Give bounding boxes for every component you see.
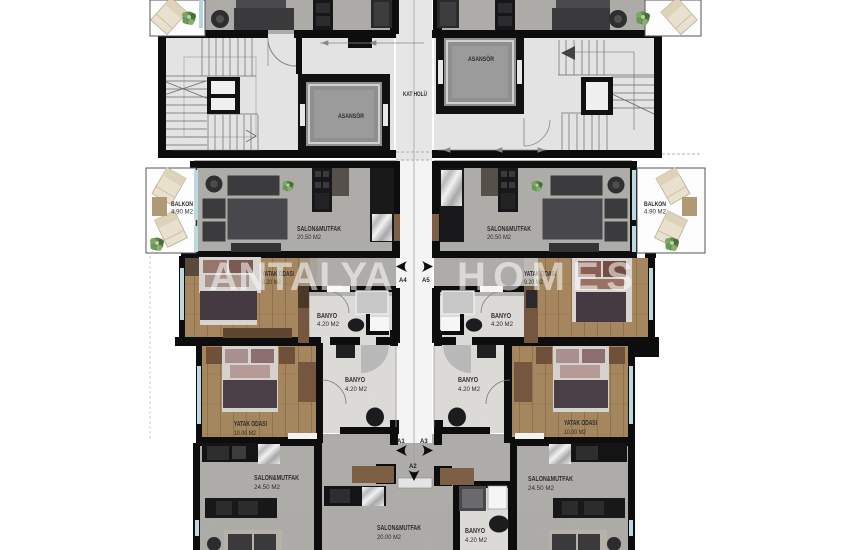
svg-text:BANYO: BANYO — [317, 313, 337, 320]
svg-text:BALKON: BALKON — [644, 201, 666, 208]
svg-text:BANYO: BANYO — [345, 377, 365, 384]
svg-text:A4: A4 — [399, 278, 407, 284]
svg-text:A2: A2 — [409, 464, 417, 470]
svg-text:10.00 M2: 10.00 M2 — [234, 430, 256, 437]
svg-text:SALON&MUTFAK: SALON&MUTFAK — [254, 475, 299, 482]
svg-text:A1: A1 — [397, 439, 405, 445]
svg-text:SALON&MUTFAK: SALON&MUTFAK — [297, 226, 341, 233]
svg-text:4.20 M2: 4.20 M2 — [465, 537, 487, 544]
svg-text:A5: A5 — [422, 278, 430, 284]
svg-text:4.90 M2: 4.90 M2 — [644, 210, 667, 216]
svg-text:4.90 M2: 4.90 M2 — [171, 210, 194, 216]
svg-text:10.00 M2: 10.00 M2 — [564, 429, 586, 436]
svg-text:4.20 M2: 4.20 M2 — [345, 386, 367, 393]
svg-text:24.50 M2: 24.50 M2 — [528, 485, 554, 492]
svg-text:20.50 M2: 20.50 M2 — [297, 234, 321, 241]
svg-text:24.50 M2: 24.50 M2 — [254, 484, 280, 491]
svg-text:BALKON: BALKON — [171, 201, 193, 208]
svg-text:20.50 M2: 20.50 M2 — [487, 234, 511, 241]
svg-text:4.20 M2: 4.20 M2 — [458, 386, 480, 393]
svg-text:SALON&MUTFAK: SALON&MUTFAK — [377, 525, 421, 532]
svg-text:20.00 M2: 20.00 M2 — [377, 534, 401, 541]
svg-text:YATAK ODASI: YATAK ODASI — [234, 421, 267, 428]
svg-text:ANTALYA: ANTALYA — [209, 255, 393, 299]
svg-text:HOMES: HOMES — [457, 255, 640, 299]
svg-text:BANYO: BANYO — [458, 377, 478, 384]
svg-text:BANYO: BANYO — [491, 313, 511, 320]
svg-text:KAT HOLÜ: KAT HOLÜ — [403, 91, 427, 98]
svg-text:ASANSÖR: ASANSÖR — [338, 113, 365, 120]
svg-text:4.20 M2: 4.20 M2 — [317, 321, 339, 328]
svg-text:4.20 M2: 4.20 M2 — [491, 321, 513, 328]
svg-text:BANYO: BANYO — [465, 528, 485, 535]
svg-text:ASANSÖR: ASANSÖR — [468, 56, 495, 63]
svg-text:YATAK ODASI: YATAK ODASI — [564, 420, 597, 427]
svg-text:A3: A3 — [420, 439, 428, 445]
svg-text:SALON&MUTFAK: SALON&MUTFAK — [528, 476, 573, 483]
svg-text:SALON&MUTFAK: SALON&MUTFAK — [487, 226, 531, 233]
